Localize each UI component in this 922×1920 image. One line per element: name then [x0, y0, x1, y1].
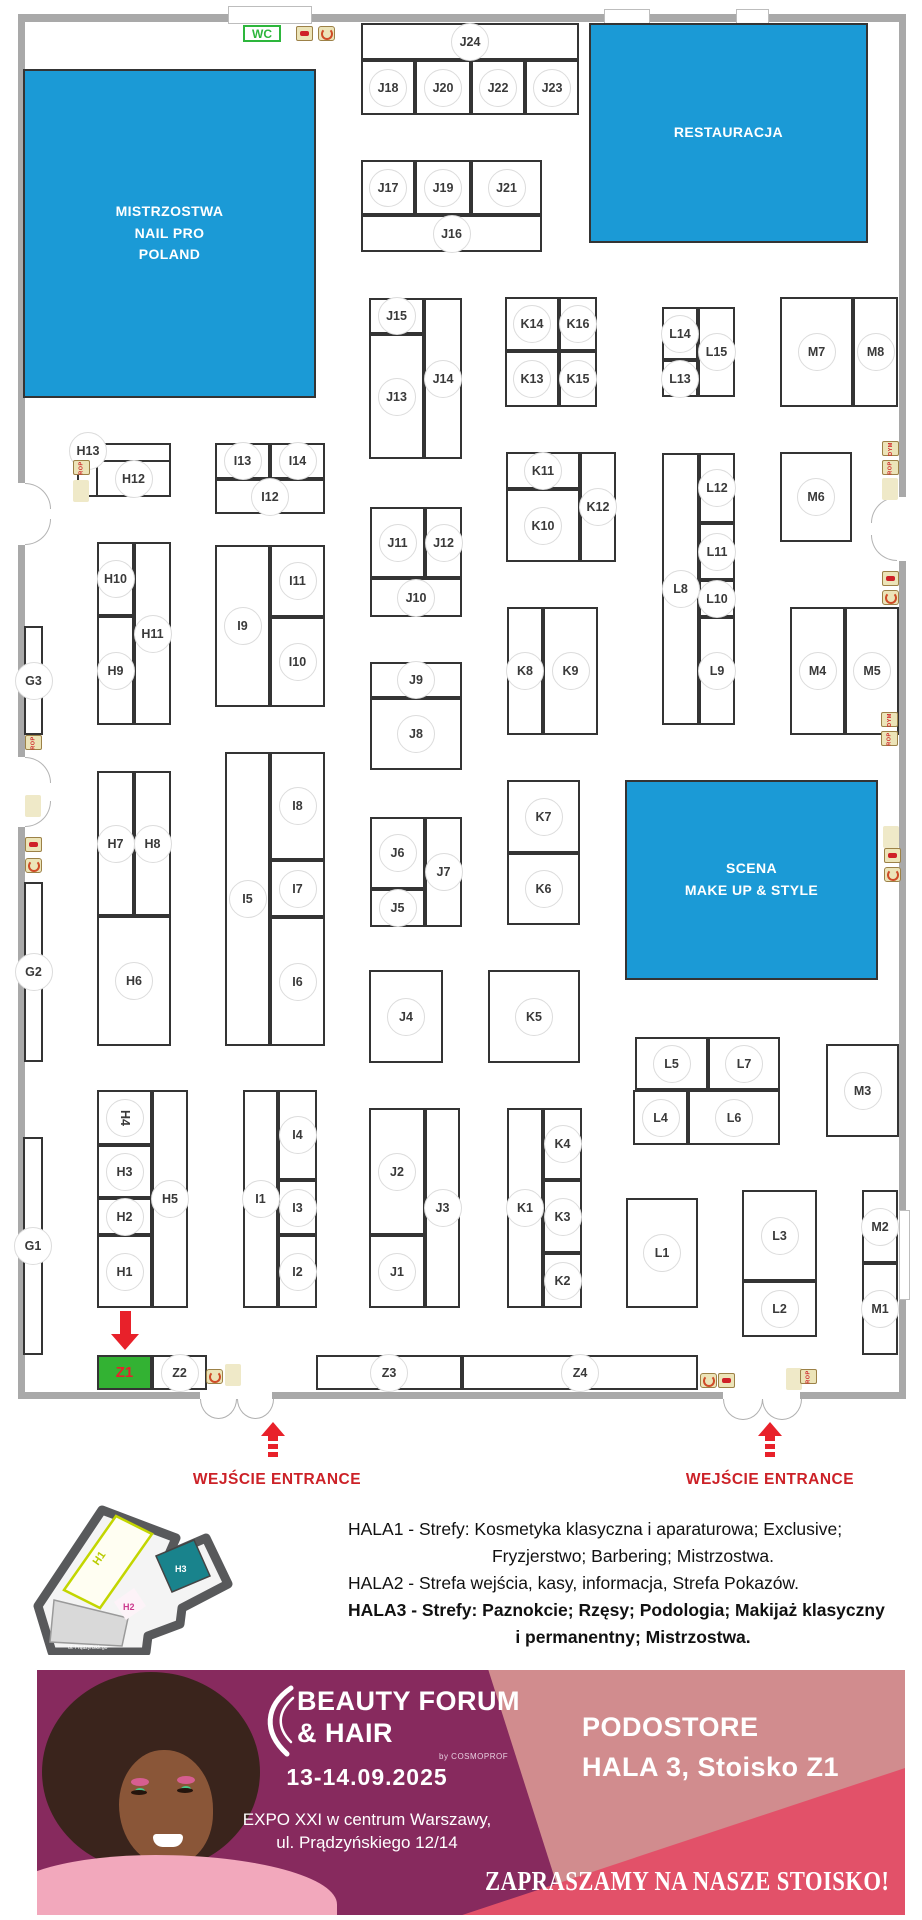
- booth-label: K10: [524, 507, 562, 545]
- booth-label-text: L12: [706, 481, 728, 495]
- booth-label: G2: [15, 953, 53, 991]
- booth-label-text: K11: [532, 464, 554, 478]
- zone-label-line: MISTRZOSTWA: [116, 201, 224, 223]
- banner-logo-line1: BEAUTY FORUM: [297, 1686, 520, 1717]
- booth-label: Z3: [370, 1354, 408, 1392]
- booth-label: K3: [544, 1198, 582, 1236]
- booth-label-text: M1: [871, 1302, 888, 1316]
- rop-marker-icon: ROP: [25, 735, 42, 750]
- fire-extinguisher-icon: [25, 837, 42, 852]
- booth-label-text: M3: [854, 1084, 871, 1098]
- booth-label-text: J21: [496, 181, 517, 195]
- booth-label-text: K4: [555, 1137, 571, 1151]
- booth-label-text: Z2: [172, 1366, 187, 1380]
- entrance-arrow-right: [758, 1422, 782, 1460]
- booth-label: M7: [798, 333, 836, 371]
- entrance-door-arc: [762, 1399, 802, 1420]
- booth-label-text: J7: [437, 865, 451, 879]
- booth-label: J19: [424, 169, 462, 207]
- fire-extinguisher-icon: [882, 571, 899, 586]
- minimap-street-label: ul. Prądzyńskiego: [68, 1645, 108, 1651]
- booth-label: M5: [853, 652, 891, 690]
- booth-label: G3: [15, 662, 53, 700]
- booth-label: H7: [97, 825, 135, 863]
- rop-marker-icon: ROP: [800, 1369, 817, 1384]
- booth-label: I11: [279, 562, 317, 600]
- booth-label-text: J24: [460, 35, 481, 49]
- booth-label: I4: [279, 1116, 317, 1154]
- zone-label-line: MAKE UP & STYLE: [685, 880, 818, 902]
- legend-line-hala1: HALA1 - Strefy: Kosmetyka klasyczna i ap…: [348, 1516, 918, 1543]
- booth-label: J7: [425, 853, 463, 891]
- booth-label: M1: [861, 1290, 899, 1328]
- entrance-door-arc: [723, 1399, 763, 1420]
- booth-label: M6: [797, 478, 835, 516]
- booth-label: L8: [662, 570, 700, 608]
- booth-label-text: I10: [289, 655, 306, 669]
- booth-label: J10: [397, 579, 435, 617]
- booth-label: H6: [115, 962, 153, 1000]
- booth-label-text: H13: [77, 444, 100, 458]
- legend-line-hala3: HALA3 - Strefy: Paznokcie; Rzęsy; Podolo…: [348, 1597, 918, 1624]
- booth-label-text: Z1: [116, 1364, 134, 1381]
- model-eye: [131, 1790, 147, 1795]
- wall-bottom-1: [18, 1392, 200, 1399]
- zone-label-line: POLAND: [139, 244, 201, 266]
- booth-label-text: I6: [292, 975, 302, 989]
- booth-label-text: J22: [488, 81, 509, 95]
- booth-label-text: M2: [871, 1220, 888, 1234]
- banner-venue-line1: EXPO XXI w centrum Warszawy,: [192, 1810, 542, 1830]
- booth-label-text: I5: [242, 892, 252, 906]
- booth-label-text: J15: [386, 309, 407, 323]
- booth-label-text: M4: [809, 664, 826, 678]
- booth-label: K11: [524, 452, 562, 490]
- wc-room: WC: [243, 25, 281, 42]
- booth-label: I14: [279, 442, 317, 480]
- booth-label: K13: [513, 360, 551, 398]
- booth-label: I12: [251, 478, 289, 516]
- booth-label: K5: [515, 998, 553, 1036]
- entrance-door-arc: [200, 1399, 237, 1419]
- booth-label: L13: [661, 360, 699, 398]
- booth-label-text: M6: [807, 490, 824, 504]
- booth-label-text: M7: [808, 345, 825, 359]
- booth-label: M4: [799, 652, 837, 690]
- booth-label-text: I11: [289, 574, 306, 588]
- booth-label: K9: [552, 652, 590, 690]
- arrow-head: [111, 1334, 139, 1350]
- booth-label-text: L10: [706, 592, 728, 606]
- fire-hose-icon: [25, 858, 42, 873]
- booth-label-text: I7: [292, 882, 302, 896]
- booth-label: I3: [279, 1189, 317, 1227]
- booth-label: K15: [559, 360, 597, 398]
- booth-label-text: J23: [542, 81, 563, 95]
- booth-label: L3: [761, 1217, 799, 1255]
- booth-label-text: J6: [391, 846, 405, 860]
- booth-label: L5: [653, 1045, 691, 1083]
- top-door-tab: [736, 9, 769, 24]
- booth-label: H5: [151, 1180, 189, 1218]
- booth-label-text: K6: [536, 882, 552, 896]
- booth-label: J12: [425, 524, 463, 562]
- zone-label-line: SCENA: [726, 858, 777, 880]
- booth-label-text: J3: [436, 1201, 450, 1215]
- booth-label-text: H5: [162, 1192, 178, 1206]
- booth-label: I5: [229, 880, 267, 918]
- booth-label-text: L2: [772, 1302, 787, 1316]
- booth-label: J20: [424, 69, 462, 107]
- legend-line-hala2: HALA2 - Strefa wejścia, kasy, informacja…: [348, 1570, 918, 1597]
- booth-label-text: J17: [378, 181, 399, 195]
- booth-label-text: J5: [391, 901, 405, 915]
- banner-logo-line2: & HAIR: [297, 1718, 393, 1749]
- booth-label: I1: [242, 1180, 280, 1218]
- arrow-shaft: [120, 1311, 131, 1334]
- booth-label-text: K12: [587, 500, 610, 514]
- booth-label-text: L9: [710, 664, 725, 678]
- entrance-label-left: WEJŚCIE ENTRANCE: [167, 1471, 387, 1489]
- eyeshadow-pink: [131, 1778, 149, 1786]
- booth-label: M8: [857, 333, 895, 371]
- booth-label-text: H12: [122, 472, 145, 486]
- booth-label-text: H4: [117, 1110, 131, 1126]
- booth-label: L10: [698, 580, 736, 618]
- booth-label: J21: [488, 169, 526, 207]
- zone-scena-makeup: SCENAMAKE UP & STYLE: [625, 780, 878, 980]
- banner-event-date: 13-14.09.2025: [217, 1764, 517, 1791]
- booth-label: J9: [397, 661, 435, 699]
- wall-right: [899, 14, 906, 1399]
- booth-label: J1: [378, 1253, 416, 1291]
- banner-exhibitor-name: PODOSTORE: [582, 1712, 759, 1743]
- booth-label-text: L8: [673, 582, 688, 596]
- booth-label: L12: [698, 469, 736, 507]
- door-arc: [25, 483, 51, 509]
- booth-label: I10: [279, 643, 317, 681]
- booth-label-text: J9: [409, 673, 423, 687]
- right-wall-opening: [899, 1210, 910, 1300]
- booth-label: L9: [698, 652, 736, 690]
- booth-label: J6: [379, 834, 417, 872]
- booth-label: K1: [506, 1189, 544, 1227]
- booth-label-text: K14: [521, 317, 544, 331]
- model-pink-blouse: [37, 1855, 337, 1915]
- booth-label: I7: [279, 870, 317, 908]
- zone-label-line: NAIL PRO: [135, 223, 205, 245]
- booth-label: K4: [544, 1125, 582, 1163]
- fire-extinguisher-icon: [718, 1373, 735, 1388]
- legend-line-hala1b: Fryzjerstwo; Barbering; Mistrzostwa.: [348, 1543, 918, 1570]
- booth-label: J24: [451, 23, 489, 61]
- booth-label: Z4: [561, 1354, 599, 1392]
- booth-label: K6: [525, 870, 563, 908]
- booth-label-text: H11: [141, 627, 163, 641]
- booth-label-text: L13: [669, 372, 691, 386]
- booth-label-text: I12: [261, 490, 278, 504]
- top-door-tab: [228, 6, 312, 24]
- booth-label-text: L6: [727, 1111, 742, 1125]
- door-arc: [25, 519, 51, 545]
- booth-label-text: L3: [772, 1229, 787, 1243]
- booth-label-text: K8: [517, 664, 533, 678]
- wall-bottom-3: [800, 1392, 899, 1399]
- booth-label: H11: [134, 615, 172, 653]
- booth-label-text: J16: [441, 227, 462, 241]
- booth-label-text: G3: [25, 674, 42, 688]
- beauty-forum-swoosh-icon: [257, 1684, 299, 1758]
- booth-label: J17: [369, 169, 407, 207]
- fire-extinguisher-icon: [296, 26, 313, 41]
- booth-z1-pointer-arrow: [111, 1311, 139, 1350]
- booth-label-text: L14: [669, 327, 691, 341]
- booth-label-text: J8: [409, 727, 423, 741]
- booth-label: I2: [279, 1253, 317, 1291]
- wall-panel-marker: [73, 480, 89, 502]
- door-arc: [871, 497, 897, 523]
- booth-label-text: J20: [433, 81, 454, 95]
- legend-line-hala3b: i permanentny; Mistrzostwa.: [348, 1624, 918, 1651]
- booth-label: K7: [525, 798, 563, 836]
- booth-label: M2: [861, 1208, 899, 1246]
- banner-booth-location: HALA 3, Stoisko Z1: [582, 1752, 839, 1783]
- booth-label: H1: [106, 1253, 144, 1291]
- fire-extinguisher-icon: [884, 848, 901, 863]
- fire-hose-icon: [318, 26, 335, 41]
- booth-label-text: J13: [386, 390, 407, 404]
- arrow-head: [758, 1422, 782, 1436]
- booth-label-text: J12: [433, 536, 454, 550]
- booth-label: H2: [106, 1198, 144, 1236]
- booth-label-text: Z3: [382, 1366, 397, 1380]
- booth-label: H12: [115, 460, 153, 498]
- booth-label-text: K3: [555, 1210, 571, 1224]
- hall-legend: HALA1 - Strefy: Kosmetyka klasyczna i ap…: [348, 1516, 918, 1651]
- expo-floor-plan-page: WC MISTRZOSTWANAIL PROPOLANDRESTAURACJAS…: [0, 0, 922, 1920]
- wc-label: WC: [252, 27, 272, 41]
- booth-label: L15: [698, 333, 736, 371]
- booth-label: J11: [379, 524, 417, 562]
- booth-label: L1: [643, 1234, 681, 1272]
- booth-label: J8: [397, 715, 435, 753]
- booth-label: L2: [761, 1290, 799, 1328]
- minimap-h2-label: H2: [123, 1602, 135, 1612]
- venue-minimap: H1 H2 H3 ul. Prądzyńskiego: [28, 1494, 286, 1655]
- booth-label: J13: [378, 378, 416, 416]
- booth-label: Z2: [161, 1354, 199, 1392]
- booth-label: L7: [725, 1045, 763, 1083]
- booth-label-text: L5: [664, 1057, 679, 1071]
- booth-label: J4: [387, 998, 425, 1036]
- booth-label-text: L15: [706, 345, 728, 359]
- booth-label-text: I2: [292, 1265, 302, 1279]
- booth-label-text: H1: [117, 1265, 133, 1279]
- booth-label-text: K2: [555, 1274, 571, 1288]
- booth-label-text: L11: [707, 545, 728, 559]
- booth-label-text: J19: [433, 181, 454, 195]
- booth-label-text: M8: [867, 345, 884, 359]
- entrance-label-right: WEJŚCIE ENTRANCE: [660, 1471, 880, 1489]
- door-arc: [25, 757, 51, 783]
- smoke-vent-icon: DYM: [882, 441, 899, 456]
- wall-panel-marker: [882, 478, 898, 500]
- booth-label: J15: [378, 297, 416, 335]
- booth-label-text: H2: [117, 1210, 133, 1224]
- booth-label-text: I3: [292, 1201, 302, 1215]
- fire-hose-icon: [700, 1373, 717, 1388]
- booth-label-text: K7: [536, 810, 552, 824]
- fire-hose-icon: [206, 1369, 223, 1384]
- booth-label-text: I14: [289, 454, 306, 468]
- arrow-shaft: [268, 1436, 278, 1460]
- booth-label-text: I4: [292, 1128, 302, 1142]
- booth-label: K2: [544, 1262, 582, 1300]
- booth-label: Z1: [106, 1354, 144, 1392]
- booth-label: J16: [433, 215, 471, 253]
- booth-label-text: M5: [863, 664, 880, 678]
- booth-label: H9: [97, 652, 135, 690]
- booth-label-text: K15: [567, 372, 590, 386]
- wall-panel-marker: [883, 826, 899, 848]
- promo-banner: BEAUTY FORUM & HAIR by COSMOPROF 13-14.0…: [37, 1670, 905, 1915]
- door-arc: [871, 535, 897, 561]
- booth-label: J2: [378, 1153, 416, 1191]
- rop-marker-icon: ROP: [73, 460, 90, 475]
- booth-label: G1: [14, 1227, 52, 1265]
- smoke-vent-icon: DYM: [881, 712, 898, 727]
- booth-label: L6: [715, 1099, 753, 1137]
- booth-label-text: H7: [108, 837, 124, 851]
- top-door-tab: [604, 9, 650, 24]
- banner-venue-line2: ul. Prądzyńskiego 12/14: [192, 1833, 542, 1853]
- entrance-door-arc: [237, 1399, 274, 1419]
- zone-mistrzostwa-nail-pro: MISTRZOSTWANAIL PROPOLAND: [23, 69, 316, 398]
- booth-label: I8: [279, 787, 317, 825]
- booth-label: H10: [97, 560, 135, 598]
- booth-label-text: H6: [126, 974, 142, 988]
- booth-label: L4: [642, 1099, 680, 1137]
- booth-label-text: G2: [25, 965, 42, 979]
- arrow-shaft: [765, 1436, 775, 1460]
- booth-label: H3: [106, 1153, 144, 1191]
- booth-label: J23: [533, 69, 571, 107]
- booth-label-text: L1: [655, 1246, 670, 1260]
- booth-label-text: K16: [567, 317, 590, 331]
- booth-label: J22: [479, 69, 517, 107]
- booth-label: I6: [279, 963, 317, 1001]
- booth-label-text: H3: [117, 1165, 133, 1179]
- booth-label-text: K5: [526, 1010, 542, 1024]
- arrow-head: [261, 1422, 285, 1436]
- fire-hose-icon: [884, 867, 901, 882]
- booth-label: H8: [134, 825, 172, 863]
- booth-label: I9: [224, 607, 262, 645]
- booth-label: L11: [698, 533, 736, 571]
- booth-label-text: Z4: [573, 1366, 588, 1380]
- entrance-arrow-left: [261, 1422, 285, 1460]
- wall-panel-marker: [225, 1364, 241, 1386]
- booth-label-text: J1: [390, 1265, 404, 1279]
- booth-label-text: H9: [108, 664, 124, 678]
- banner-slogan: ZAPRASZAMY NA NASZE STOISKO!: [485, 1866, 889, 1897]
- booth-label-text: I9: [237, 619, 247, 633]
- eyeshadow-pink: [177, 1776, 195, 1784]
- booth-label-text: L4: [653, 1111, 668, 1125]
- model-eye: [177, 1788, 193, 1793]
- booth-label-text: K10: [532, 519, 555, 533]
- booth-label: J3: [424, 1189, 462, 1227]
- booth-label: K14: [513, 305, 551, 343]
- booth-label-text: J4: [399, 1010, 413, 1024]
- model-smile: [153, 1834, 183, 1847]
- wall-bottom-2: [272, 1392, 723, 1399]
- booth-label-text: J10: [406, 591, 427, 605]
- booth-label-text: K13: [521, 372, 544, 386]
- booth-label-text: I8: [292, 799, 302, 813]
- rop-marker-icon: ROP: [881, 731, 898, 746]
- booth-label: L14: [661, 315, 699, 353]
- zone-label-line: RESTAURACJA: [674, 122, 783, 144]
- right-wall-doorway: [896, 497, 906, 561]
- booth-label-text: I1: [255, 1192, 265, 1206]
- booth-label-text: L7: [737, 1057, 752, 1071]
- booth-label: J14: [424, 360, 462, 398]
- rop-marker-icon: ROP: [882, 460, 899, 475]
- minimap-h3-label: H3: [175, 1564, 187, 1574]
- booth-label-text: H8: [145, 837, 161, 851]
- booth-label: J18: [369, 69, 407, 107]
- banner-logo-subtitle: by COSMOPROF: [439, 1752, 508, 1761]
- booth-label: K16: [559, 305, 597, 343]
- booth-label: H4: [106, 1099, 144, 1137]
- booth-label-text: K1: [517, 1201, 533, 1215]
- zone-restauracja: RESTAURACJA: [589, 23, 868, 243]
- wall-panel-marker: [25, 795, 41, 817]
- booth-label-text: H10: [104, 572, 127, 586]
- booth-label: M3: [844, 1072, 882, 1110]
- fire-hose-icon: [882, 590, 899, 605]
- booth-label-text: J11: [387, 536, 407, 550]
- booth-label: J5: [379, 889, 417, 927]
- booth-label-text: I13: [234, 454, 251, 468]
- booth-label-text: K9: [563, 664, 579, 678]
- booth-label-text: J18: [378, 81, 399, 95]
- booth-label-text: J2: [390, 1165, 404, 1179]
- booth-label: I13: [224, 442, 262, 480]
- booth-label: K8: [506, 652, 544, 690]
- booth-label-text: G1: [25, 1239, 42, 1253]
- booth-label-text: J14: [433, 372, 454, 386]
- booth-label: K12: [579, 488, 617, 526]
